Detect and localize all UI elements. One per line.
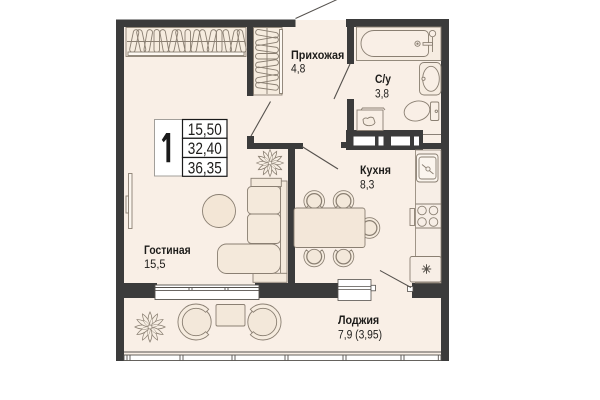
svg-text:4,8: 4,8: [291, 64, 305, 76]
svg-text:36,35: 36,35: [188, 159, 222, 177]
svg-text:8,3: 8,3: [360, 180, 374, 192]
svg-text:3,8: 3,8: [375, 89, 389, 101]
svg-text:Лоджия: Лоджия: [338, 315, 379, 327]
svg-text:15,50: 15,50: [188, 121, 222, 139]
svg-text:7,9 (3,95): 7,9 (3,95): [338, 330, 382, 342]
svg-text:32,40: 32,40: [188, 140, 222, 158]
svg-text:С/у: С/у: [375, 74, 392, 86]
svg-text:Гостиная: Гостиная: [144, 245, 191, 257]
svg-text:Прихожая: Прихожая: [291, 50, 344, 62]
svg-text:15,5: 15,5: [144, 259, 166, 271]
svg-text:Кухня: Кухня: [360, 165, 391, 177]
